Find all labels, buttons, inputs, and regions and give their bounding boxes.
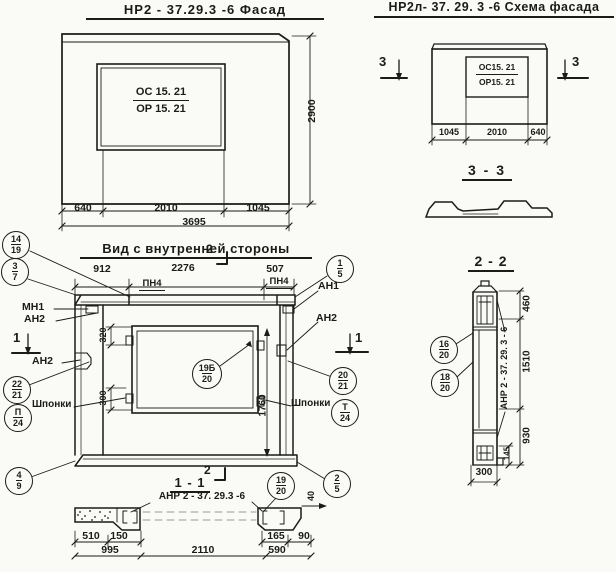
s11-dim-150: 150 bbox=[106, 531, 132, 542]
inner-dim-right: 507 bbox=[260, 264, 290, 275]
facade-lines bbox=[59, 33, 316, 231]
pn4-label-right: ПН4 bbox=[266, 277, 292, 289]
section1-marker-left: 1 bbox=[13, 331, 20, 344]
callout-2-5: 2 5 bbox=[323, 470, 351, 498]
schema-dim-mid: 2010 bbox=[483, 128, 511, 137]
facade-dim-left: 640 bbox=[68, 203, 98, 214]
an2-label-left-top: АН2 bbox=[24, 314, 45, 325]
section-22-vertical-label: АНР 2 - 37. 29. 3 - 6 bbox=[500, 302, 512, 434]
s11-dim-510: 510 bbox=[78, 531, 104, 542]
callout-top: 4 bbox=[16, 471, 21, 480]
callout-bottom: 7 bbox=[12, 271, 17, 282]
callout-16-20: 16 20 bbox=[430, 336, 458, 364]
callout-T-24: Т 24 bbox=[331, 399, 359, 427]
mn1-label: МН1 bbox=[22, 302, 44, 313]
callout-bottom: 20 bbox=[276, 485, 286, 496]
facade-window-mark: ОС 15. 21 ОР 15. 21 bbox=[128, 86, 194, 115]
drawing-sheet: НР2 - 37.29.3 -6 Фасад НР2л- 37. 29. 3 -… bbox=[0, 0, 616, 572]
s11-dim-40: 40 bbox=[307, 487, 317, 505]
callout-19b-20: 19Б 20 bbox=[192, 359, 222, 389]
inner-dim-320: 320 bbox=[99, 323, 109, 347]
callout-top: 16 bbox=[439, 340, 449, 349]
window-mark-bottom: ОР15. 21 bbox=[468, 75, 526, 87]
s22-dim-top: 460 bbox=[523, 291, 534, 317]
callout-top: 3 bbox=[12, 262, 17, 271]
callout-22-21: 22 21 bbox=[3, 376, 31, 404]
s22-dim-width: 300 bbox=[471, 468, 497, 478]
section-11-label: АНР 2 - 37. 29.3 -6 bbox=[146, 492, 258, 502]
inner-dim-left: 912 bbox=[88, 264, 116, 275]
callout-P-24: П 24 bbox=[4, 404, 32, 432]
s11-dim-2110: 2110 bbox=[186, 545, 220, 556]
s11-dim-590: 590 bbox=[263, 545, 291, 556]
callout-bottom: 24 bbox=[340, 412, 350, 423]
callout-top: Т bbox=[342, 403, 348, 412]
callout-bottom: 21 bbox=[338, 380, 348, 391]
facade-dim-mid: 2010 bbox=[148, 203, 184, 214]
shponki-label-right: Шпонки bbox=[291, 399, 330, 409]
callout-bottom: 20 bbox=[439, 349, 449, 360]
callout-top: 19Б bbox=[199, 364, 215, 373]
section-22-lines bbox=[456, 281, 524, 486]
inner-view-title: Вид с внутренней стороны bbox=[80, 242, 312, 259]
inner-view-lines bbox=[12, 251, 368, 512]
callout-18-20: 18 20 bbox=[431, 369, 459, 397]
callout-top: 18 bbox=[440, 373, 450, 382]
callout-top: 19 bbox=[276, 476, 286, 485]
s11-dim-90: 90 bbox=[294, 531, 314, 542]
callout-20-21: 20 21 bbox=[329, 367, 357, 395]
inner-dim-300: 300 bbox=[99, 386, 109, 410]
callout-top: 20 bbox=[338, 371, 348, 380]
schema-marker-right: 3 bbox=[572, 55, 579, 68]
callout-top: 1 bbox=[337, 259, 342, 268]
callout-19-20: 19 20 bbox=[267, 472, 295, 500]
callout-4-9: 4 9 bbox=[5, 467, 33, 495]
callout-bottom: 19 bbox=[11, 244, 21, 255]
section-22-title: 2 - 2 bbox=[468, 254, 514, 272]
pn4-label-left: ПН4 bbox=[139, 279, 165, 291]
callout-bottom: 9 bbox=[16, 480, 21, 491]
section2-marker-bottom: 2 bbox=[204, 464, 211, 476]
section-33-title: 3 - 3 bbox=[462, 163, 512, 181]
schema-dim-left: 1045 bbox=[435, 128, 463, 137]
inner-dim-mid: 2276 bbox=[165, 263, 201, 274]
schema-dim-right: 640 bbox=[527, 128, 549, 137]
facade-dim-right: 1045 bbox=[240, 203, 276, 214]
window-mark-bottom: ОР 15. 21 bbox=[128, 101, 194, 115]
schema-title: НР2л- 37. 29. 3 -6 Схема фасада bbox=[374, 1, 614, 18]
schema-window-mark: ОС15. 21 ОР15. 21 bbox=[468, 62, 526, 87]
callout-top: 2 bbox=[334, 474, 339, 483]
section1-marker-right: 1 bbox=[355, 331, 362, 344]
s22-dim-small: 145 bbox=[504, 444, 513, 464]
callout-bottom: 20 bbox=[202, 373, 212, 384]
callout-bottom: 21 bbox=[12, 389, 22, 400]
s22-dim-bottom: 930 bbox=[523, 423, 534, 449]
section-33-lines bbox=[426, 201, 552, 217]
shponki-label-left: Шпонки bbox=[32, 400, 71, 410]
callout-bottom: 5 bbox=[334, 483, 339, 494]
s22-dim-mid: 1510 bbox=[523, 347, 534, 377]
callout-bottom: 5 bbox=[337, 268, 342, 279]
window-mark-top: ОС 15. 21 bbox=[133, 86, 189, 101]
an2-label-left-mid: АН2 bbox=[32, 356, 53, 367]
callout-top: 22 bbox=[12, 380, 22, 389]
callout-1-5: 1 5 bbox=[326, 255, 354, 283]
facade-dim-total: 3695 bbox=[172, 217, 216, 228]
callout-top: 14 bbox=[11, 235, 21, 244]
callout-14-19: 14 19 bbox=[2, 231, 30, 259]
s11-dim-165: 165 bbox=[263, 531, 289, 542]
callout-top: П bbox=[15, 408, 21, 417]
schema-marker-left: 3 bbox=[379, 55, 386, 68]
callout-bottom: 20 bbox=[440, 382, 450, 393]
section2-marker-top: 2 bbox=[206, 243, 213, 255]
facade-title: НР2 - 37.29.3 -6 Фасад bbox=[86, 3, 324, 20]
window-mark-top: ОС15. 21 bbox=[476, 62, 518, 75]
callout-bottom: 24 bbox=[13, 417, 23, 428]
facade-dim-height: 2900 bbox=[307, 93, 321, 129]
an2-label-right: АН2 bbox=[316, 313, 337, 324]
callout-3-7: 3 7 bbox=[1, 258, 29, 286]
inner-dim-1760: 1760 bbox=[259, 391, 270, 421]
s11-dim-995: 995 bbox=[96, 545, 124, 556]
